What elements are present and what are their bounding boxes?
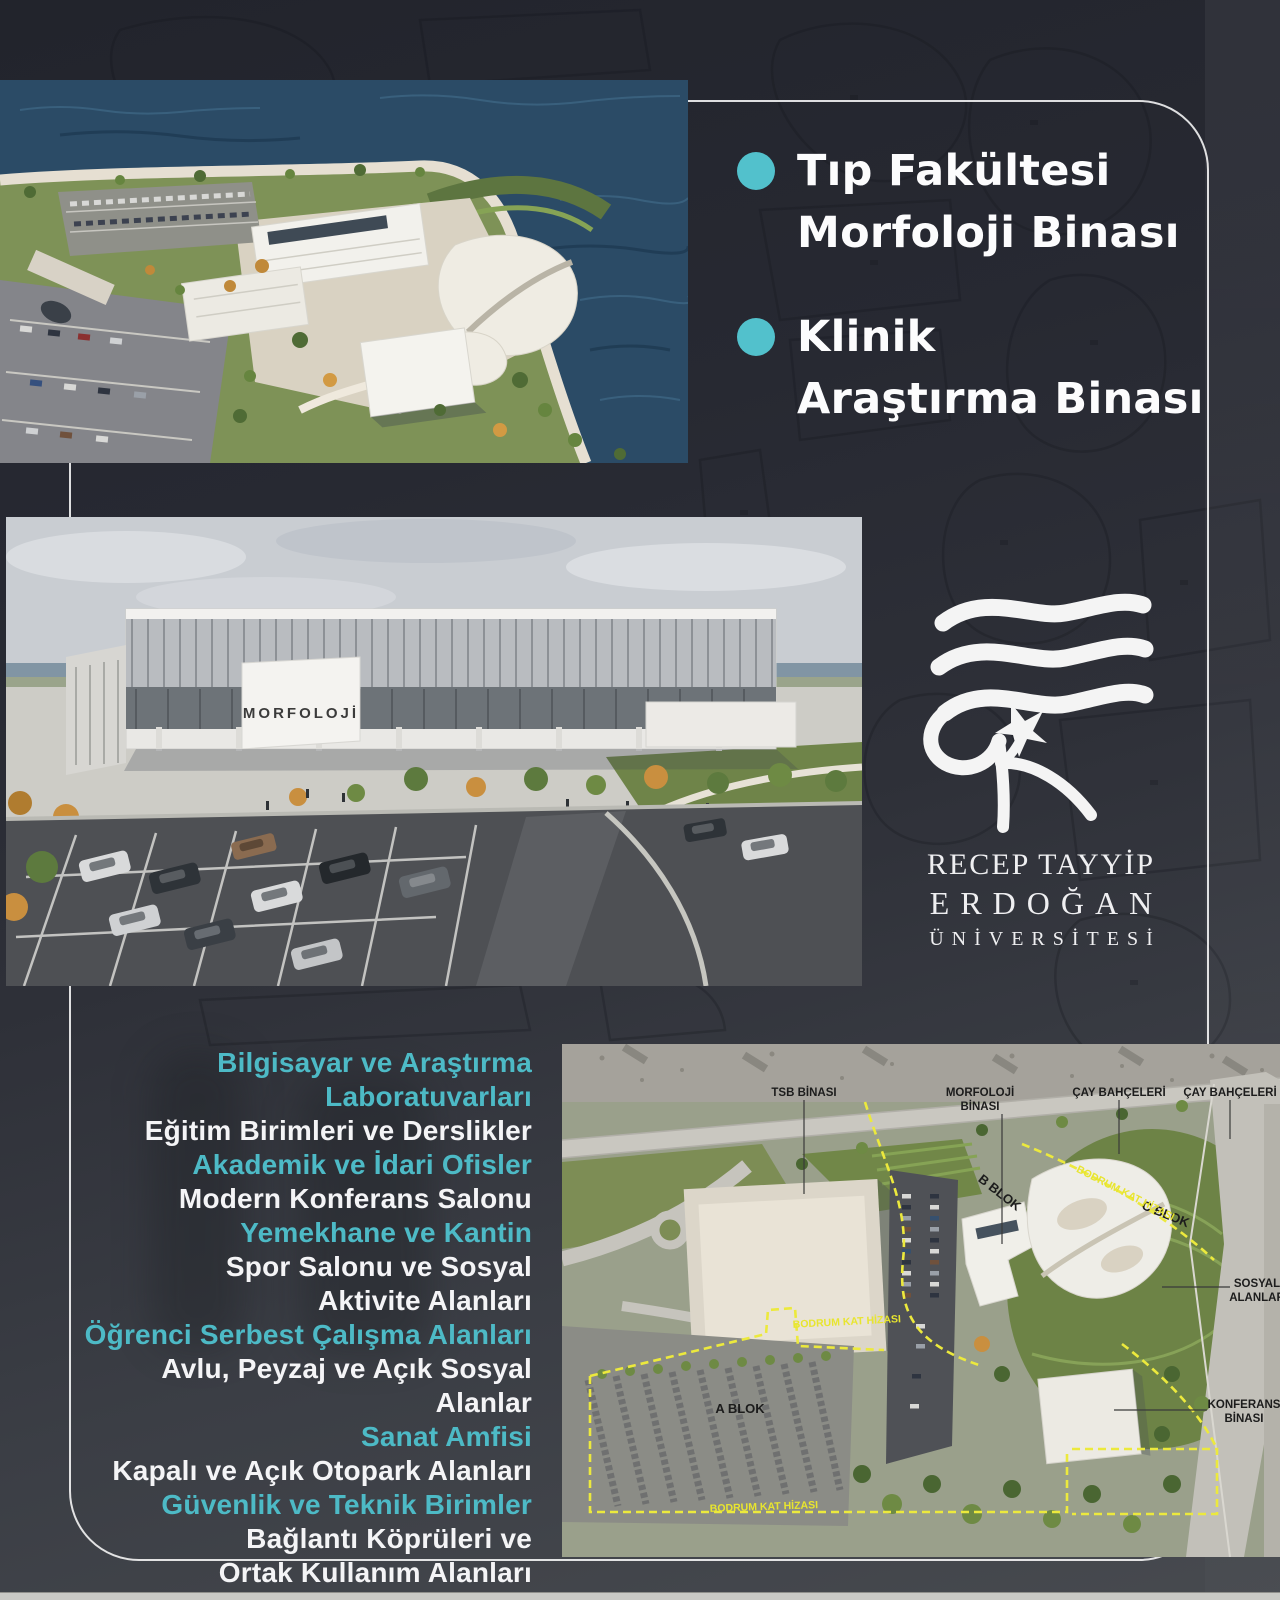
feature-line: Avlu, Peyzaj ve Açık Sosyal Alanlar xyxy=(70,1352,532,1420)
site-plan-image: TSB BİNASI MORFOLOJİ BİNASI ÇAY BAHÇELER… xyxy=(562,1044,1280,1557)
feature-line: Bağlantı Köprüleri ve xyxy=(70,1522,532,1556)
logo-line-1: RECEP TAYYİP xyxy=(886,848,1196,882)
plan-label-tsb: TSB BİNASI xyxy=(771,1086,836,1099)
logo-line-2: ERDOĞAN xyxy=(886,885,1196,922)
feature-line: Yemekhane ve Kantin xyxy=(70,1216,532,1250)
plan-label-cay-2: ÇAY BAHÇELERİ xyxy=(1183,1086,1276,1099)
feature-line: Kapalı ve Açık Otopark Alanları xyxy=(70,1454,532,1488)
plan-label-konferans-2: BİNASI xyxy=(1225,1412,1264,1425)
feature-line: Eğitim Birimleri ve Derslikler xyxy=(70,1114,532,1148)
headline-text: Tıp Fakültesi Morfoloji Binası xyxy=(797,140,1180,264)
feature-line: Ortak Kullanım Alanları xyxy=(70,1556,532,1590)
headline-line: Araştırma Binası xyxy=(797,368,1204,430)
bullet-dot-icon xyxy=(737,318,775,356)
plan-label-morfoloji-2: BİNASI xyxy=(961,1100,1000,1113)
feature-line: Laboratuvarları xyxy=(70,1080,532,1114)
headline-bullet-list: Tıp Fakültesi Morfoloji Binası Klinik Ar… xyxy=(737,140,1217,430)
headline-line: Klinik xyxy=(797,306,1204,368)
headline-line: Morfoloji Binası xyxy=(797,202,1180,264)
headline-item-morfoloji: Tıp Fakültesi Morfoloji Binası xyxy=(737,140,1217,264)
plan-label-a-blok: A BLOK xyxy=(715,1401,765,1416)
feature-line: Spor Salonu ve Sosyal xyxy=(70,1250,532,1284)
features-list: Bilgisayar ve Araştırma Laboratuvarları … xyxy=(70,1046,532,1590)
feature-line: Öğrenci Serbest Çalışma Alanları xyxy=(70,1318,532,1352)
headline-item-klinik: Klinik Araştırma Binası xyxy=(737,306,1217,430)
bottom-photo-strip xyxy=(0,1592,1280,1600)
feature-line: Akademik ve İdari Ofisler xyxy=(70,1148,532,1182)
logo-line-3: ÜNİVERSİTESİ xyxy=(886,928,1196,951)
aerial-campus-photo xyxy=(0,80,688,463)
feature-line: Bilgisayar ve Araştırma xyxy=(70,1046,532,1080)
plan-label-sosyal-2: ALANLAR xyxy=(1229,1292,1280,1304)
plan-label-sosyal-1: SOSYAL xyxy=(1234,1278,1280,1290)
university-logo-text: RECEP TAYYİP ERDOĞAN ÜNİVERSİTESİ xyxy=(886,848,1196,951)
feature-line: Aktivite Alanları xyxy=(70,1284,532,1318)
plan-label-morfoloji-1: MORFOLOJİ xyxy=(946,1086,1014,1099)
university-logo-icon xyxy=(915,575,1165,843)
headline-text: Klinik Araştırma Binası xyxy=(797,306,1204,430)
bullet-dot-icon xyxy=(737,152,775,190)
poster-page: Tıp Fakültesi Morfoloji Binası Klinik Ar… xyxy=(0,0,1280,1600)
morfoloji-building-photo: MORFOLOJİ xyxy=(6,517,862,986)
plan-label-konferans-1: KONFERANS xyxy=(1208,1399,1280,1411)
building-sign-text: MORFOLOJİ xyxy=(243,705,359,722)
feature-line: Modern Konferans Salonu xyxy=(70,1182,532,1216)
feature-line: Sanat Amfisi xyxy=(70,1420,532,1454)
headline-line: Tıp Fakültesi xyxy=(797,140,1180,202)
plan-label-cay-1: ÇAY BAHÇELERİ xyxy=(1072,1086,1165,1099)
feature-line: Güvenlik ve Teknik Birimler xyxy=(70,1488,532,1522)
